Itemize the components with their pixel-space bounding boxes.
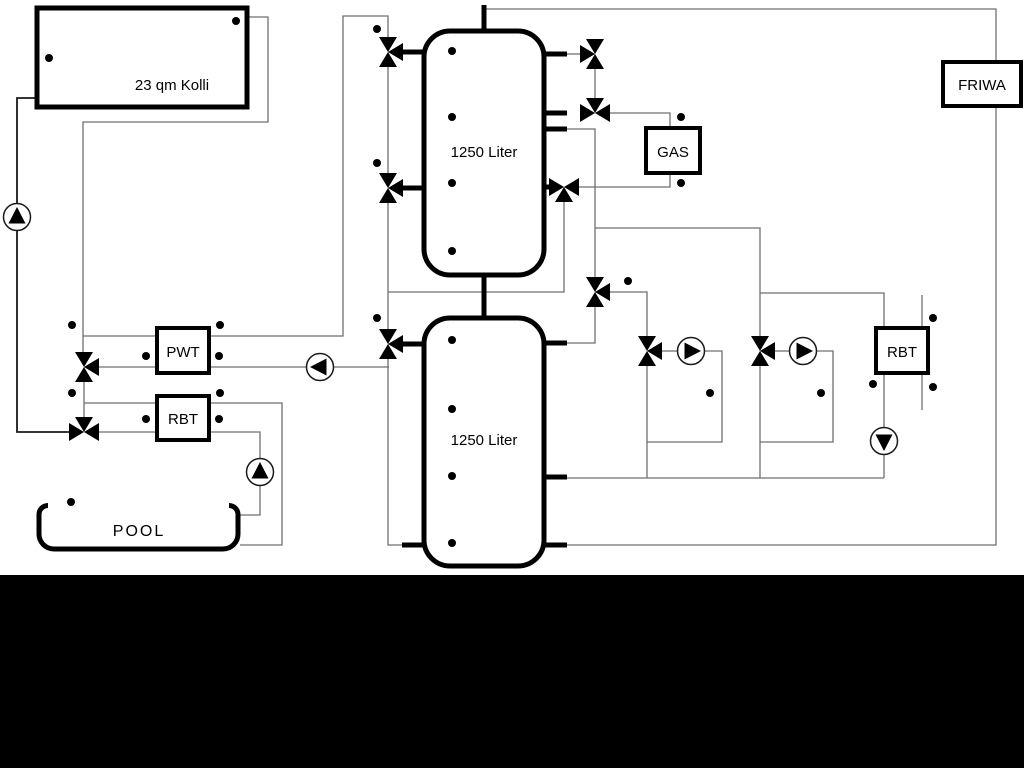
hydraulic-scheme-page: 1250 Liter 1250 Liter 23 qm Kolli GAS FR… xyxy=(0,0,1024,768)
hydraulic-scheme-diagram: 1250 Liter 1250 Liter 23 qm Kolli GAS FR… xyxy=(0,0,1024,768)
rbt-exchanger-right-label: RBT xyxy=(887,344,917,361)
tank-bottom-label: 1250 Liter xyxy=(451,432,518,449)
pump-icon xyxy=(247,459,274,486)
pump-icon xyxy=(790,338,817,365)
solar-collector-label: 23 qm Kolli xyxy=(135,77,209,94)
pool-label: POOL xyxy=(113,523,165,540)
pump-icon xyxy=(307,354,334,381)
pwt-exchanger-label: PWT xyxy=(166,344,199,361)
friwa-station-label: FRIWA xyxy=(958,77,1006,94)
gas-boiler-label: GAS xyxy=(657,144,689,161)
rbt-exchanger-left-label: RBT xyxy=(168,411,198,428)
bottom-black-bar xyxy=(0,575,1024,768)
pump-icon xyxy=(678,338,705,365)
pump-icon xyxy=(4,204,31,231)
pump-icon xyxy=(871,428,898,455)
tank-top-label: 1250 Liter xyxy=(451,144,518,161)
